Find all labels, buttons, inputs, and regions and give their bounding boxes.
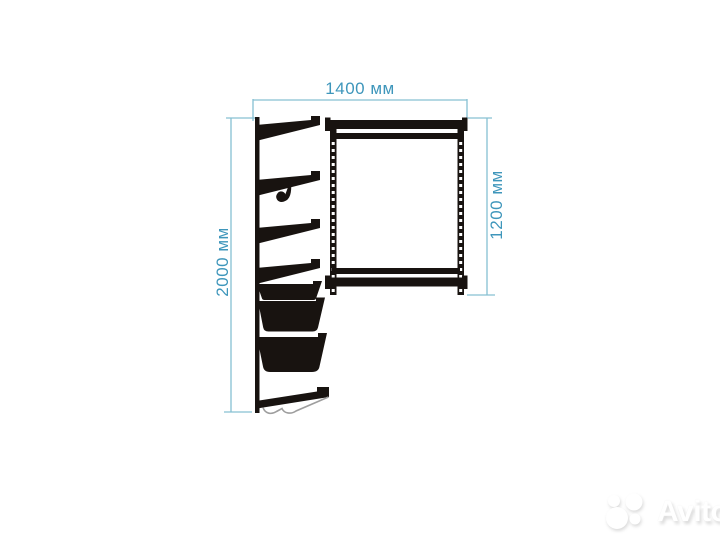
dim-height-frame-label: 1200 мм bbox=[488, 145, 506, 265]
hang-bar-top-cap-left bbox=[325, 118, 331, 132]
bracket-3 bbox=[256, 219, 320, 244]
avito-wordmark: Avito bbox=[657, 495, 720, 529]
wall-rail bbox=[255, 117, 260, 413]
bar-upper-thin bbox=[332, 133, 460, 139]
front-frame bbox=[325, 118, 468, 296]
bracket-4 bbox=[256, 259, 320, 284]
diagram-canvas: 1400 мм 2000 мм 1200 мм Avito bbox=[0, 0, 720, 538]
bracket-1 bbox=[256, 116, 320, 141]
hang-bar-top-cap-right bbox=[462, 118, 468, 132]
avito-watermark: Avito bbox=[604, 492, 720, 532]
dim-height-total-label: 2000 мм bbox=[214, 202, 232, 322]
avito-logo-icon bbox=[604, 492, 652, 532]
hang-bar-bottom bbox=[328, 278, 466, 287]
hang-bar-bottom-cap-left bbox=[325, 276, 331, 290]
basket-small bbox=[257, 281, 322, 300]
side-view bbox=[255, 116, 329, 413]
dim-width-label: 1400 мм bbox=[280, 80, 440, 98]
basket-large bbox=[257, 333, 327, 372]
hang-bar-bottom-cap-right bbox=[462, 276, 468, 290]
dim-width-1400 bbox=[253, 99, 467, 121]
hang-bar-top bbox=[328, 120, 466, 129]
bar-lower-thin bbox=[332, 268, 460, 274]
shoe-shelf bbox=[256, 387, 329, 409]
basket-medium bbox=[258, 298, 325, 332]
